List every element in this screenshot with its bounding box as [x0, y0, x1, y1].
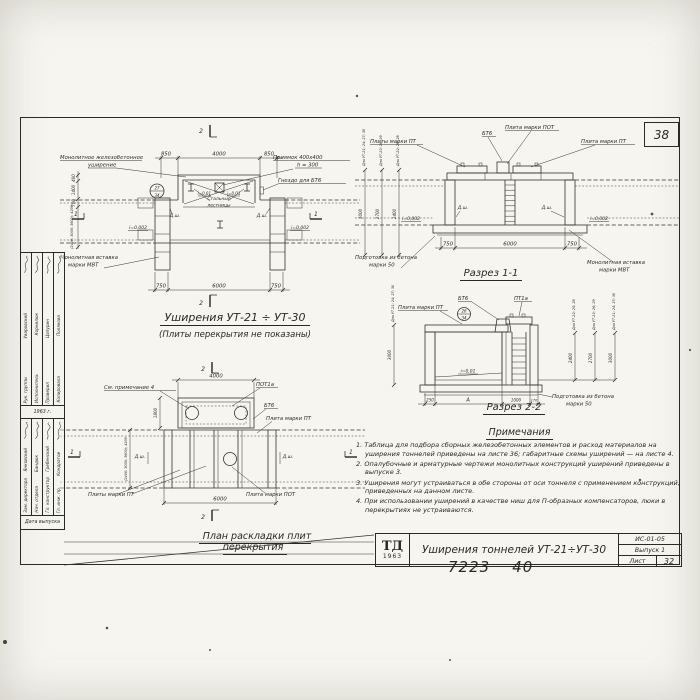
stamp-cell: Цапурин Проверил: [43, 253, 54, 405]
signature-icon: [44, 255, 53, 275]
blueprint-sheet: 38: [0, 0, 700, 700]
handwritten-number-right: 40: [512, 558, 533, 576]
signature-icon: [44, 421, 53, 441]
stamp-name: Гребенский: [46, 446, 50, 472]
stamp-role: Исполнитель: [35, 374, 39, 403]
title-block-strike-lines: [0, 0, 700, 700]
stamp-name: Бандюк: [35, 455, 39, 472]
stamp-cell: Полякова Копировала: [54, 253, 64, 405]
stamp-group-2: Янковский Зам. директора Бандюк Нач. отд…: [21, 419, 64, 515]
stamp-name: Янковский: [24, 448, 28, 471]
stamp-cell: Кондратов Гл. инж. пр.: [54, 419, 64, 515]
stamp-cell: Янковский Зам. директора: [21, 419, 32, 515]
stamp-name: Полякова: [57, 315, 61, 336]
stamp-role: Гл. инж. пр.: [57, 487, 61, 513]
stamp-role: Рук. группы: [24, 377, 28, 403]
stamp-name: Кондратов: [57, 452, 61, 476]
signature-icon: [55, 421, 64, 441]
stamp-role: Нач. отдела: [35, 486, 39, 513]
signature-icon: [55, 255, 64, 275]
stamp-role: Зам. директора: [24, 478, 28, 513]
stamp-name: Уваровский: [24, 313, 28, 339]
signature-icon: [22, 255, 31, 275]
stamp-role: Копировала: [57, 376, 61, 403]
stamp-year-row: 1963 г.: [21, 405, 64, 419]
stamp-group-1: Уваровский Рук. группы Корнилюк Исполнит…: [21, 253, 64, 405]
signature-icon: [33, 255, 42, 275]
stamp-role: Гл. конструктор: [46, 477, 50, 513]
stamp-cell: Уваровский Рук. группы: [21, 253, 32, 405]
stamp-date-row: Дата выпуска: [21, 515, 64, 529]
signature-stamp: Уваровский Рук. группы Корнилюк Исполнит…: [20, 252, 65, 530]
handwritten-numbers: 722340: [448, 558, 533, 576]
stamp-cell: Корнилюк Исполнитель: [32, 253, 43, 405]
signature-icon: [22, 421, 31, 441]
stamp-name: Корнилюк: [35, 313, 39, 335]
stamp-name: Цапурин: [46, 319, 50, 338]
stamp-role: Проверил: [46, 382, 50, 403]
stamp-cell: Гребенский Гл. конструктор: [43, 419, 54, 515]
signature-icon: [33, 421, 42, 441]
stamp-cell: Бандюк Нач. отдела: [32, 419, 43, 515]
handwritten-number-left: 7223: [448, 558, 490, 576]
